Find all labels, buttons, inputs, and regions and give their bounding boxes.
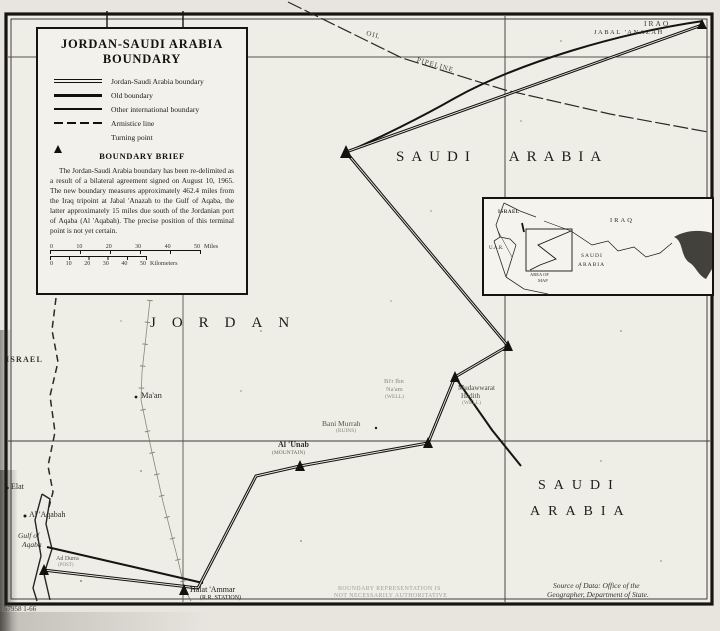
legend-items: Jordan-Saudi Arabia boundary Old boundar… [50,76,234,142]
inset-iraq-label: IRAQ [610,218,634,225]
inset-area-label-2: MAP [538,279,548,284]
legend-item-label: Other international boundary [111,105,199,114]
scale-tick: 50 [194,244,200,250]
saudi-arabia-south-label-2: ARABIA [530,505,632,519]
halat-ammar-type: (R.R. STATION) [200,595,241,601]
inset-saudi-label-1: SAUDI [581,254,603,260]
ad-durra-type: (POST) [58,563,74,568]
jordan-label: JORDAN [150,316,305,331]
saudi-arabia-south-label-1: SAUDI [538,479,621,493]
triangle-symbol-wrap [54,128,102,146]
map-number: 57958 1-66 [4,606,36,613]
halat-ammar-label: Halat 'Ammar [190,586,235,594]
scale-tick: 40 [165,244,171,250]
disclaimer-line-2: NOT NECESSARILY AUTHORITATIVE [334,594,447,600]
israel-label: ISRAEL [6,356,43,364]
legend-item-label: Jordan-Saudi Arabia boundary [111,77,204,86]
legend-item-other-boundary: Other international boundary [54,104,234,114]
legend-item-label: Old boundary [111,91,153,100]
scale-tick: 0 [50,261,53,267]
scale-tick: 30 [135,244,141,250]
maan-label: Ma'an [141,391,162,400]
thick-line-symbol [54,94,102,97]
double-line-symbol [54,79,102,83]
elat-label: Elat [11,483,24,491]
scanned-boundary-map: JORDAN-SAUDI ARABIA BOUNDARY Jordan-Saud… [0,0,720,631]
inset-location-map: ISRAEL U.A.R. IRAQ SAUDI ARABIA AREA OF … [482,197,714,296]
bani-murrah-label: Bani Murrah [322,420,361,428]
legend-item-label: Turning point [111,133,153,142]
bani-murrah-type: (RUINS) [336,429,356,435]
legend-item-armistice: Armistice line [54,118,234,128]
ad-durra-label: Ad Durra [56,556,79,562]
saudi-arabia-north-label: SAUDI ARABIA [396,150,608,165]
bir-ibn-naam-label-2: Na'am [386,387,403,394]
mudawwarat-hadith-label-1: Mudawwarat [458,385,495,392]
scale-tick: 20 [84,261,90,267]
inset-saudi-label-2: ARABIA [578,263,605,269]
gulf-of-aqaba-label-1: Gulf of [18,532,39,540]
legend-item-boundary: Jordan-Saudi Arabia boundary [54,76,234,86]
legend-title-line2: BOUNDARY [50,52,234,67]
al-unab-type: (MOUNTAIN) [272,451,305,457]
turning-point-icon [54,128,62,153]
scale-tick: 10 [76,244,82,250]
scale-miles-numbers: 01020304050 Miles [50,243,234,250]
medium-line-symbol [54,108,102,110]
scale-tick: 20 [106,244,112,250]
source-note-line-1: Source of Data: Office of the [553,582,640,590]
al-aqabah-label: Al 'Aqabah [29,511,65,519]
scale-miles-bar [50,250,201,254]
source-note-line-2: Geographer, Department of State. [547,591,649,599]
iraq-label: IRAQ [644,20,670,28]
legend-item-turning-point: Turning point [54,132,234,142]
inset-area-label-1: AREA OF [530,273,549,278]
mudawwarat-hadith-type: (WELL) [462,401,481,407]
boundary-brief-heading: BOUNDARY BRIEF [50,151,234,161]
mudawwarat-hadith-label-2: Hadith [461,393,480,400]
scale-km-numbers: 01020304050 Kilometers [50,260,234,267]
bir-ibn-naam-label-1: Bi'r Ibn [384,379,404,386]
gulf-of-aqaba-label-2: Aqaba [22,541,42,549]
al-unab-label: Al 'Unab [278,441,309,449]
boundary-brief-text: The Jordan-Saudi Arabia boundary has bee… [50,166,234,236]
inset-uar-label: U.A.R. [489,246,503,251]
scale-tick: 30 [103,261,109,267]
legend-panel: JORDAN-SAUDI ARABIA BOUNDARY Jordan-Saud… [36,27,248,295]
scale-tick: 40 [121,261,127,267]
scale-tick: 0 [50,244,53,250]
legend-item-label: Armistice line [111,119,154,128]
scale-tick: 10 [66,261,72,267]
inset-israel-label: ISRAEL [498,210,520,215]
jabal-anazah-label: JABAL 'ANAZAH [594,30,664,37]
legend-title-line1: JORDAN-SAUDI ARABIA [50,37,234,52]
bir-ibn-naam-type: (WELL) [385,395,404,401]
scale-km-unit: Kilometers [150,260,178,267]
scale-tick: 50 [140,261,146,267]
legend-item-old-boundary: Old boundary [54,90,234,100]
scale-bar: 01020304050 Miles 01020304050 Kilometers [50,243,234,267]
scale-miles-unit: Miles [204,243,218,250]
disclaimer-line-1: BOUNDARY REPRESENTATION IS [338,587,441,593]
dashed-line-symbol [54,122,102,124]
